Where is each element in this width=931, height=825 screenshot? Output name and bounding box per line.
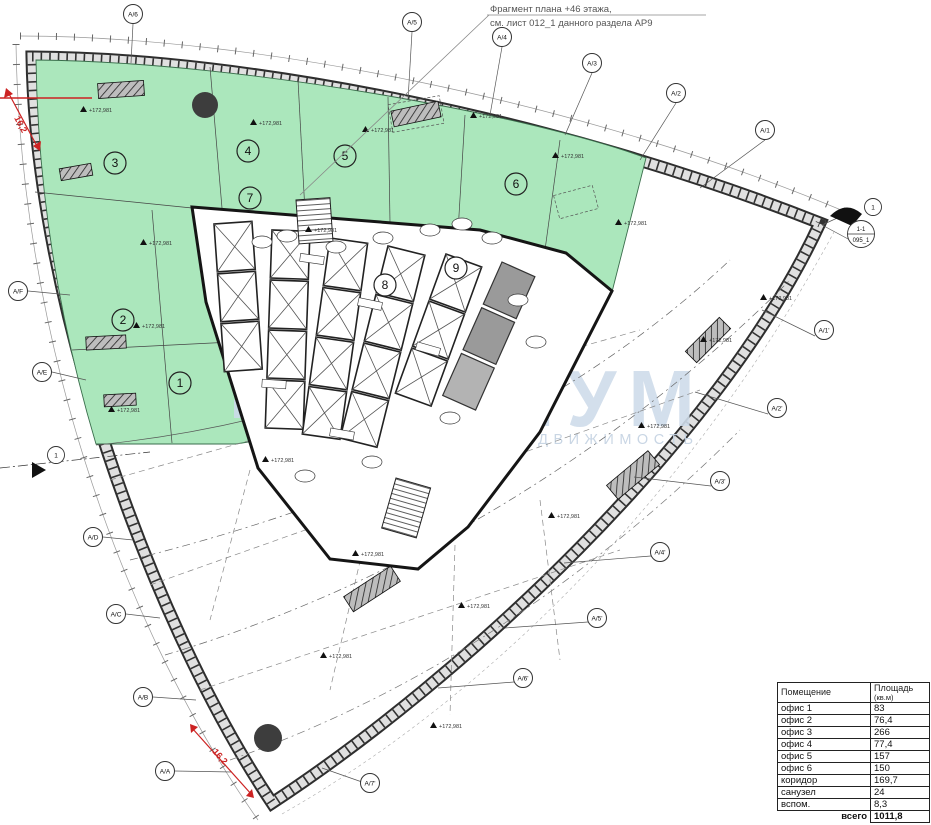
svg-text:16,2: 16,2 bbox=[211, 747, 230, 767]
svg-text:2: 2 bbox=[120, 313, 127, 327]
svg-text:А/E: А/E bbox=[37, 370, 48, 377]
svg-text:+172,981: +172,981 bbox=[479, 114, 502, 120]
svg-text:+172,981: +172,981 bbox=[271, 458, 294, 464]
axis-bubble-diag-2: А/6' bbox=[514, 669, 533, 688]
axis-bubble-top-3: А/4 bbox=[493, 28, 512, 47]
svg-text:+172,981: +172,981 bbox=[647, 424, 670, 430]
svg-text:А/6': А/6' bbox=[518, 676, 529, 683]
svg-text:+172,981: +172,981 bbox=[142, 324, 165, 330]
svg-text:А/2': А/2' bbox=[772, 406, 783, 413]
area-legend-table: Помещение Площадь(кв.м) офис 183 офис 27… bbox=[777, 682, 930, 823]
svg-text:+172,981: +172,981 bbox=[314, 228, 337, 234]
svg-text:+172,981: +172,981 bbox=[259, 121, 282, 127]
axis-bubble-diag-4: А/4' bbox=[651, 543, 670, 562]
svg-text:1-1: 1-1 bbox=[857, 227, 866, 233]
svg-text:А/4': А/4' bbox=[655, 550, 666, 557]
svg-text:А/6: А/6 bbox=[128, 12, 138, 19]
svg-text:8: 8 bbox=[382, 278, 389, 292]
svg-text:1: 1 bbox=[177, 376, 184, 390]
legend-header-row: Помещение Площадь(кв.м) bbox=[778, 683, 930, 703]
svg-text:А/5: А/5 bbox=[407, 20, 417, 27]
axis-bubble-top-4: А/3 bbox=[583, 54, 602, 73]
legend-row: офис 6150 bbox=[778, 763, 930, 775]
room-circle-9: 9 bbox=[445, 257, 467, 279]
svg-text:1: 1 bbox=[54, 453, 58, 460]
svg-text:+172,981: +172,981 bbox=[561, 154, 584, 160]
axis-bubble-left-3: А/D bbox=[84, 528, 103, 547]
svg-text:А/C: А/C bbox=[111, 612, 122, 619]
drawing-sheet: ДИУМ КОММЕРЧЕСКАЯ НЕДВИЖИМОСТЬ bbox=[0, 0, 931, 825]
svg-text:+172,981: +172,981 bbox=[467, 604, 490, 610]
axis-bubble-top-5: А/2 bbox=[667, 84, 686, 103]
annotation-line2: см. лист 012_1 данного раздела АР9 bbox=[490, 18, 653, 29]
svg-text:9: 9 bbox=[453, 261, 460, 275]
svg-text:+172,981: +172,981 bbox=[361, 552, 384, 558]
svg-text:А/1': А/1' bbox=[819, 328, 830, 335]
annotation-line1: Фрагмент плана +46 этажа, bbox=[490, 4, 612, 15]
svg-text:А/3': А/3' bbox=[715, 479, 726, 486]
svg-text:А/7': А/7' bbox=[365, 781, 376, 788]
axis-bubble-diag-7: А/1' bbox=[815, 321, 834, 340]
svg-text:+172,981: +172,981 bbox=[709, 338, 732, 344]
legend-row: вспом.8,3 bbox=[778, 799, 930, 811]
svg-text:+172,981: +172,981 bbox=[557, 514, 580, 520]
axis-bubble-left-4: А/C bbox=[107, 605, 126, 624]
legend-total-row: всего 1011,8 bbox=[778, 811, 930, 823]
svg-text:+172,981: +172,981 bbox=[371, 128, 394, 134]
svg-text:+172,981: +172,981 bbox=[439, 724, 462, 730]
axis-bubble-top-1: А/6 bbox=[124, 5, 143, 24]
legend-header-area: Площадь(кв.м) bbox=[871, 683, 930, 703]
svg-text:+172,981: +172,981 bbox=[329, 654, 352, 660]
svg-text:А/2: А/2 bbox=[671, 91, 681, 98]
svg-text:А/D: А/D bbox=[88, 535, 99, 542]
svg-text:16,2: 16,2 bbox=[12, 114, 29, 134]
svg-text:+172,981: +172,981 bbox=[89, 108, 112, 114]
axis-bubble-diag-5: А/3' bbox=[711, 472, 730, 491]
svg-text:+172,981: +172,981 bbox=[769, 296, 792, 302]
svg-text:А/1: А/1 bbox=[760, 128, 770, 135]
legend-header-room: Помещение bbox=[778, 683, 871, 703]
axis-bubble-top-2: А/5 bbox=[403, 13, 422, 32]
svg-text:+172,981: +172,981 bbox=[149, 241, 172, 247]
section-marker-left: 1 bbox=[32, 447, 65, 479]
legend-row: офис 3266 bbox=[778, 727, 930, 739]
legend-row: санузел24 bbox=[778, 787, 930, 799]
svg-text:7: 7 bbox=[247, 191, 254, 205]
legend-row: офис 477,4 bbox=[778, 739, 930, 751]
svg-text:3: 3 bbox=[112, 156, 119, 170]
svg-text:+172,981: +172,981 bbox=[624, 221, 647, 227]
legend-row: офис 183 bbox=[778, 703, 930, 715]
axis-bubble-diag-3: А/5' bbox=[588, 609, 607, 628]
axis-bubble-diag-1: А/7' bbox=[361, 774, 380, 793]
axis-bubble-left-1: А/F bbox=[9, 282, 28, 301]
svg-text:6: 6 bbox=[513, 177, 520, 191]
axis-bubble-left-5: А/B bbox=[134, 688, 153, 707]
svg-text:4: 4 bbox=[245, 144, 252, 158]
svg-text:А/4: А/4 bbox=[497, 35, 507, 42]
legend-row: офис 5157 bbox=[778, 751, 930, 763]
legend-row: офис 276,4 bbox=[778, 715, 930, 727]
svg-text:А/F: А/F bbox=[13, 289, 23, 296]
svg-text:А/A: А/A bbox=[160, 769, 171, 776]
svg-text:А/5': А/5' bbox=[592, 616, 603, 623]
svg-text:5: 5 bbox=[342, 149, 349, 163]
svg-text:+172,981: +172,981 bbox=[117, 408, 140, 414]
svg-text:А/3: А/3 bbox=[587, 61, 597, 68]
room-circle-8: 8 bbox=[374, 274, 396, 296]
svg-text:095_1: 095_1 bbox=[853, 238, 870, 244]
svg-text:А/B: А/B bbox=[138, 695, 148, 702]
axis-bubble-left-2: А/E bbox=[33, 363, 52, 382]
axis-bubble-left-6: А/A bbox=[156, 762, 175, 781]
svg-text:1: 1 bbox=[871, 205, 875, 212]
axis-bubble-diag-6: А/2' bbox=[768, 399, 787, 418]
legend-row: коридор169,7 bbox=[778, 775, 930, 787]
axis-bubble-top-6: А/1 bbox=[756, 121, 775, 140]
